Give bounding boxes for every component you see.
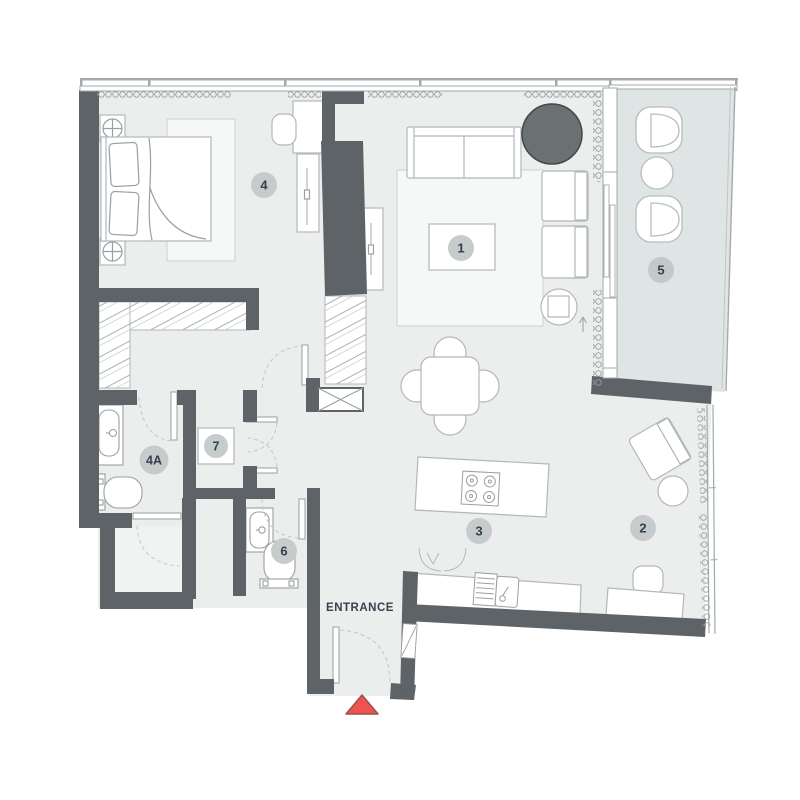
storage-floor bbox=[115, 527, 182, 593]
svg-text:3: 3 bbox=[475, 524, 482, 539]
curtain-coil bbox=[593, 94, 602, 182]
pillow bbox=[109, 142, 139, 186]
svg-text:4: 4 bbox=[260, 178, 268, 193]
room-label-bathroom-ensuite: 4A bbox=[140, 446, 169, 475]
room-label-bedroom: 4 bbox=[251, 172, 277, 198]
floor-plan: 1 2 3 4 4A 5 6 7 ENT bbox=[0, 0, 800, 800]
room-label-utility: 7 bbox=[204, 434, 228, 458]
svg-text:5: 5 bbox=[657, 263, 664, 278]
entrance-marker-icon bbox=[346, 695, 378, 714]
room-label-kitchen: 3 bbox=[466, 518, 492, 544]
svg-text:6: 6 bbox=[280, 544, 287, 559]
curtain-coil bbox=[288, 91, 321, 100]
wall-hatch-box bbox=[401, 624, 417, 659]
door-leaf bbox=[133, 513, 181, 519]
curtain-coil bbox=[593, 290, 602, 386]
window-band-top bbox=[80, 86, 610, 91]
dining-table bbox=[421, 357, 479, 415]
balcony-table bbox=[641, 157, 673, 189]
bedside-lamp-icon bbox=[103, 242, 122, 261]
curtain-coil bbox=[368, 91, 442, 100]
room-label-study: 2 bbox=[630, 515, 656, 541]
room-label-balcony: 5 bbox=[648, 257, 674, 283]
entrance-label: ENTRANCE bbox=[326, 602, 394, 614]
door-leaf bbox=[299, 499, 305, 539]
room-label-living: 1 bbox=[448, 235, 474, 261]
curtain-coil bbox=[97, 91, 231, 100]
door-leaf bbox=[171, 392, 177, 440]
desk-chair bbox=[272, 114, 296, 145]
side-table bbox=[658, 476, 688, 506]
svg-text:1: 1 bbox=[457, 241, 464, 256]
headboard bbox=[101, 137, 106, 241]
room-label-bathroom-guest: 6 bbox=[271, 538, 297, 564]
toilet-bowl bbox=[104, 477, 142, 508]
bedroom-desk bbox=[293, 101, 323, 153]
svg-text:4A: 4A bbox=[146, 454, 162, 468]
bedside-lamp-icon bbox=[103, 119, 122, 138]
service-shaft-icon bbox=[318, 388, 363, 411]
pillow bbox=[109, 191, 139, 235]
floor-plan-page: 1 2 3 4 4A 5 6 7 ENT bbox=[0, 0, 800, 800]
round-dark-table bbox=[522, 104, 582, 164]
hall-closet-hatch bbox=[325, 296, 366, 384]
svg-text:7: 7 bbox=[213, 440, 220, 454]
curtain-coil bbox=[524, 91, 601, 100]
entrance-door-leaf bbox=[333, 627, 339, 683]
kitchen-sink-icon bbox=[473, 573, 519, 608]
cooktop-icon bbox=[461, 471, 500, 506]
wardrobe-left-hatch bbox=[99, 302, 130, 388]
svg-text:2: 2 bbox=[639, 521, 646, 536]
